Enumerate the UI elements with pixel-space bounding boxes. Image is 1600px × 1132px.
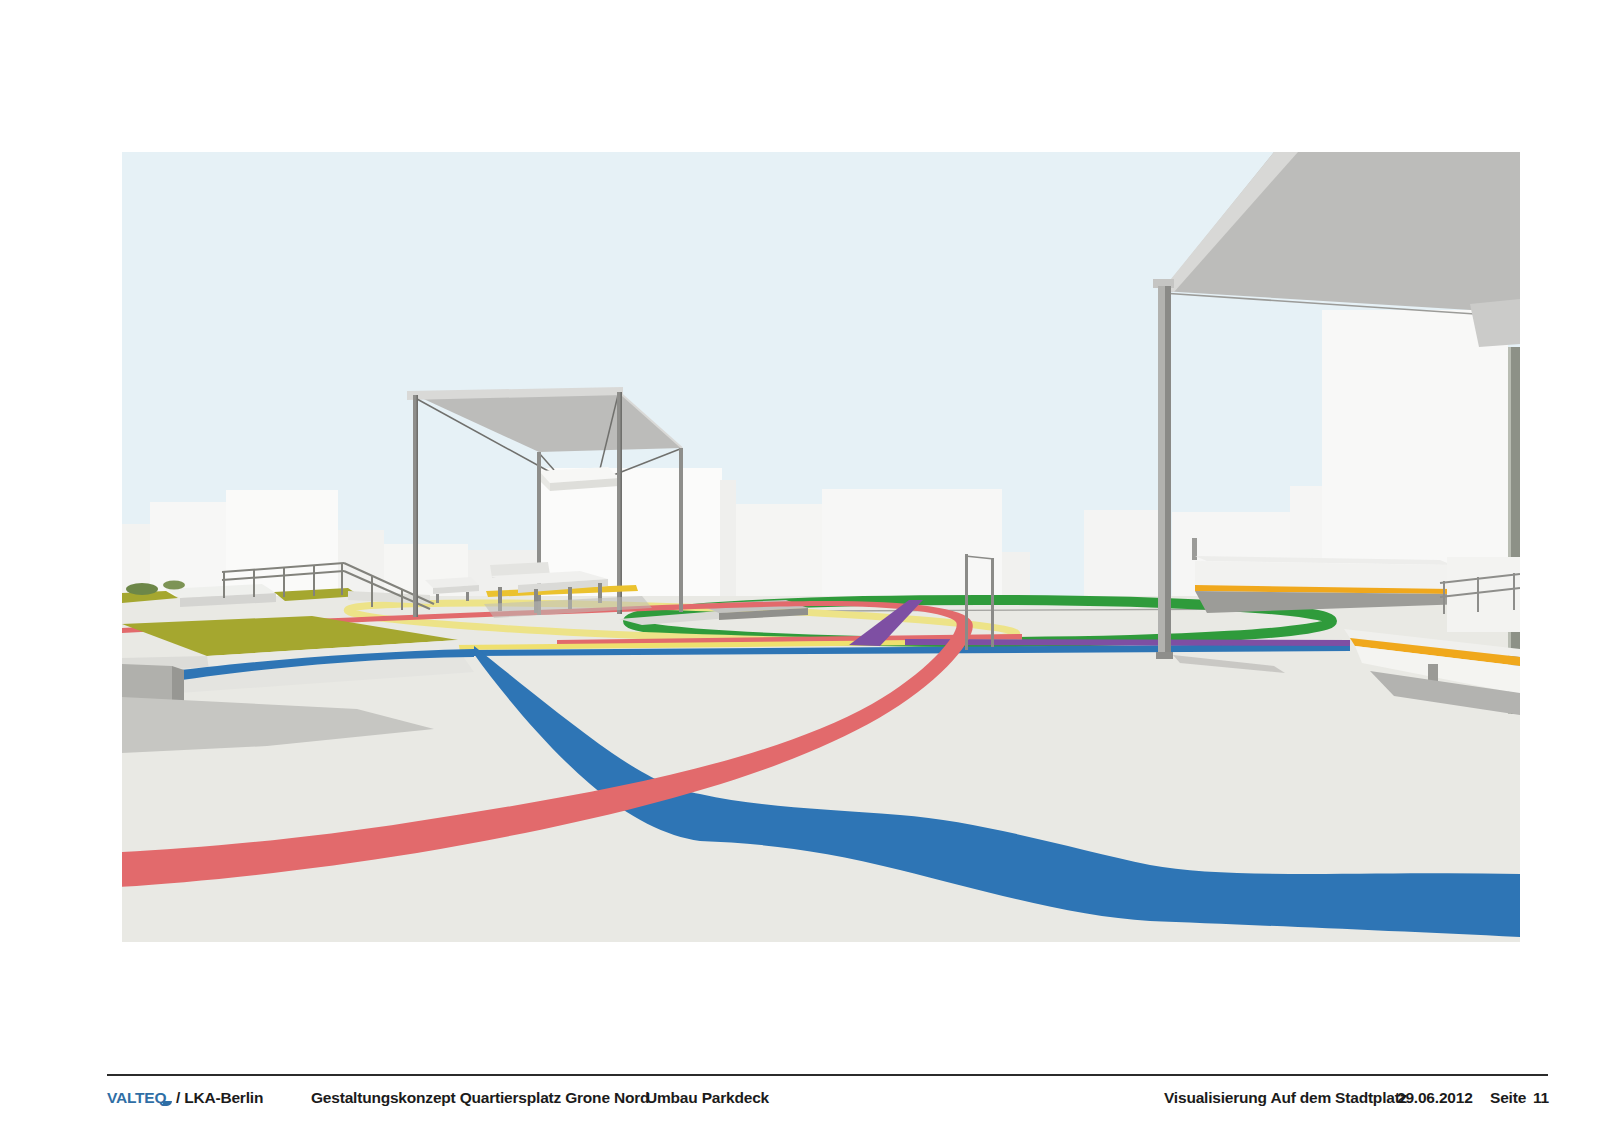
footer-date: 29.06.2012 xyxy=(1397,1089,1473,1107)
footer-rule xyxy=(107,1074,1548,1076)
purple-stripe xyxy=(905,639,1350,646)
footer-page-number: 11 xyxy=(1533,1089,1549,1107)
company-logo: VALTEQ xyxy=(107,1089,166,1107)
footer-sheet-title: Visualisierung Auf dem Stadtplatz xyxy=(1164,1089,1407,1107)
logo-swoosh xyxy=(163,1101,172,1106)
visualization-image xyxy=(122,152,1520,942)
footer-project-subtitle: Umbau Parkdeck xyxy=(646,1089,769,1107)
footer-project-title: Gestaltungskonzept Quartiersplatz Grone … xyxy=(311,1089,649,1107)
footer-partner: / LKA-Berlin xyxy=(176,1089,263,1107)
footer-page-label: Seite xyxy=(1490,1089,1526,1107)
page: { "footer": { "logo": "VALTEQ", "partner… xyxy=(0,0,1600,1132)
building-behind-right-pavilion xyxy=(1322,310,1508,600)
neighbor-canopy-slab xyxy=(1470,299,1520,347)
